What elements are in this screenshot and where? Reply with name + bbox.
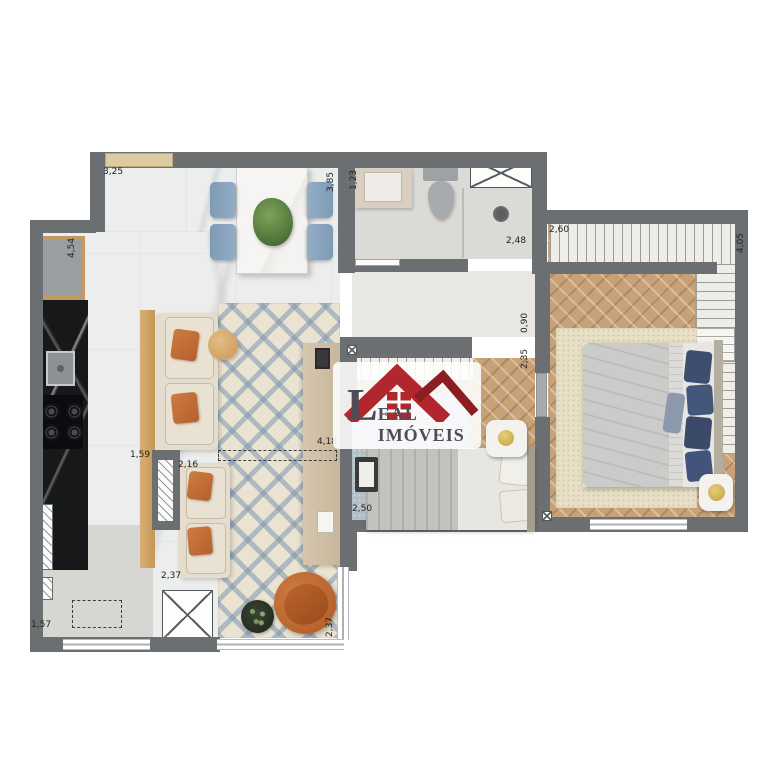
sink-drain [57, 365, 64, 372]
master-closet-top [550, 224, 735, 266]
tv-frame [315, 348, 330, 369]
wall-top-right [545, 210, 748, 224]
master-door [536, 373, 547, 417]
master-pillow-navy [686, 384, 714, 416]
balcony-glass-bottom [217, 639, 344, 650]
plant-leaves [245, 604, 270, 629]
wall-far-left [30, 220, 43, 652]
service-dashed-area [72, 600, 122, 628]
dimension-label-1-59: 1,59 [130, 451, 150, 460]
watermark-logo: LEAL IMÓVEIS [333, 362, 481, 449]
burners [43, 403, 83, 441]
dimension-label-3-25: 3,25 [103, 168, 123, 177]
dimension-label-2-16: 2,16 [178, 461, 198, 470]
kitchen-sink [46, 351, 75, 386]
hallway-floor [352, 271, 535, 337]
toilet-tank [423, 166, 458, 181]
shower-glass-line [462, 188, 464, 258]
floor-hatch-box [162, 590, 213, 640]
dimension-label-4-54: 4,54 [68, 238, 77, 258]
round-side-table [208, 330, 238, 360]
logo-initial: L [347, 382, 378, 428]
master-duvet [583, 343, 669, 487]
dining-chair [307, 224, 333, 260]
wall-closet-bottom [547, 262, 717, 274]
bed2-duvet [366, 448, 458, 530]
dimension-label-2-48: 2,48 [506, 237, 526, 246]
dimension-label-1-57: 1,57 [31, 621, 51, 630]
wall-bedroom2-top [340, 337, 472, 358]
column-shaft-hatch [157, 459, 174, 522]
dining-chair [210, 182, 236, 218]
master-pillow-navy [683, 350, 712, 385]
dimension-label-2-37: 2,37 [161, 572, 181, 581]
table-plant [253, 198, 293, 246]
vanity-basin [364, 172, 402, 202]
entry-door-mat [105, 153, 173, 167]
bedroom2-nightstand [486, 420, 527, 457]
throw-pillow [186, 471, 213, 502]
dimension-label-4-05: 4,05 [737, 233, 746, 253]
bed2-headboard [527, 446, 535, 532]
balcony-glass-right [337, 567, 349, 640]
dimension-label-2-37: 2,37 [326, 617, 335, 637]
throw-pillow [170, 328, 200, 361]
burner [43, 403, 60, 420]
dimension-label-1-23: 1,23 [350, 170, 359, 190]
console-decor [317, 511, 334, 533]
logo-text: LEAL IMÓVEIS [347, 382, 481, 446]
shower-drain [493, 206, 509, 222]
dimension-label-2-35: 2,35 [521, 349, 530, 369]
cooktop [40, 395, 83, 449]
wall-right [735, 210, 748, 532]
bedroom2-bed [366, 448, 534, 530]
wall-symbol-box [347, 345, 357, 355]
bedroom2-lamp [498, 430, 514, 446]
master-pillow-navy [684, 416, 713, 450]
service-window [63, 639, 150, 650]
master-window [590, 519, 687, 530]
dimension-label-2-60: 2,60 [549, 226, 569, 235]
floor-plan-canvas: 3,254,543,851,232,482,604,050,902,354,18… [0, 0, 767, 767]
wall-symbol-box [542, 511, 552, 521]
master-nightstand [699, 474, 733, 511]
master-bed [583, 343, 716, 487]
dimension-label-3-85: 3,85 [327, 172, 336, 192]
bathroom-door [355, 259, 400, 266]
dimension-label-0-90: 0,90 [521, 313, 530, 333]
tv-screen [359, 462, 374, 487]
throw-pillow [171, 392, 200, 425]
master-headboard [714, 340, 723, 490]
throw-pillow [187, 526, 213, 556]
wall-bedrooms-divider-upper [535, 274, 550, 373]
burner [66, 403, 83, 420]
dimension-label-2-50: 2,50 [352, 505, 372, 514]
ceiling-projection-line [218, 450, 337, 461]
dining-chair [210, 224, 236, 260]
bedroom2-tv-frame [355, 457, 378, 492]
burner [43, 424, 60, 441]
master-lamp [708, 484, 725, 501]
wall-bedrooms-divider-lower [535, 417, 550, 517]
bathroom-vanity [355, 167, 412, 208]
burner [66, 424, 83, 441]
logo-name: EAL IMÓVEIS [378, 404, 481, 446]
